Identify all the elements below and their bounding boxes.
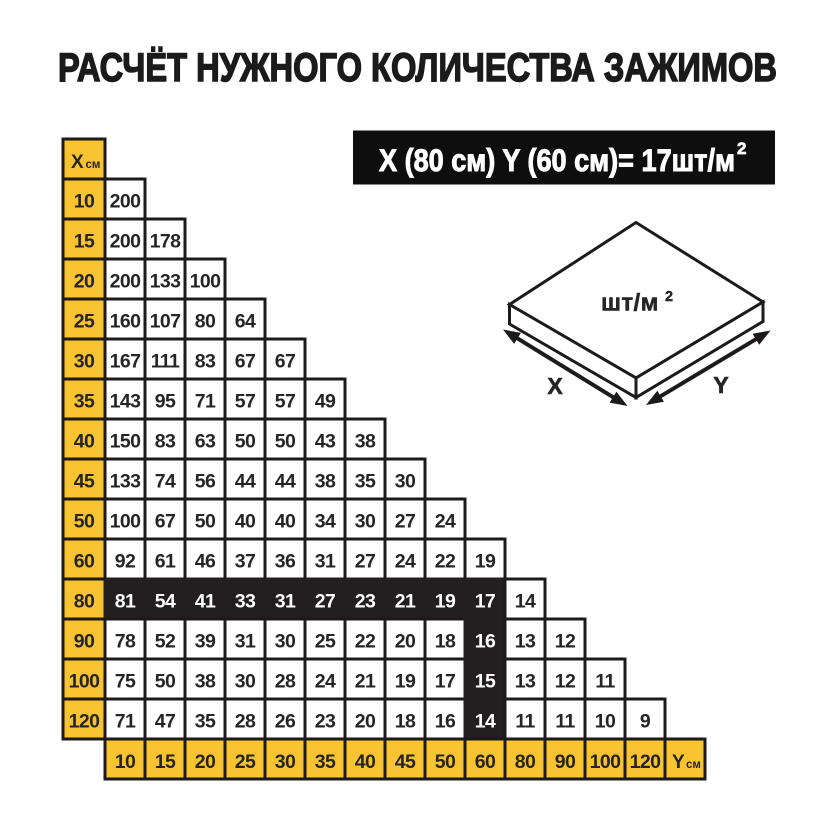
svg-text:40: 40 [235,511,256,533]
svg-text:10: 10 [115,751,136,773]
svg-text:15: 15 [155,751,176,773]
svg-text:30: 30 [235,671,256,693]
svg-text:13: 13 [515,631,536,653]
svg-text:9: 9 [640,711,651,733]
svg-text:11: 11 [595,671,615,693]
svg-text:24: 24 [435,511,456,533]
svg-text:78: 78 [115,631,136,653]
svg-text:30: 30 [275,631,296,653]
svg-text:19: 19 [395,671,416,693]
svg-text:83: 83 [155,431,176,453]
svg-text:40: 40 [275,511,296,533]
svg-text:11: 11 [555,711,575,733]
svg-text:50: 50 [74,511,95,533]
svg-text:100: 100 [590,751,621,773]
svg-text:38: 38 [195,671,216,693]
svg-text:22: 22 [355,631,376,653]
svg-text:37: 37 [235,551,256,573]
svg-text:67: 67 [275,351,296,373]
svg-text:80: 80 [195,311,216,333]
svg-text:33: 33 [235,591,256,613]
svg-text:X (80 см) Y (60 см)= 17шт/м: X (80 см) Y (60 см)= 17шт/м [379,142,735,178]
svg-text:80: 80 [74,591,95,613]
svg-text:РАСЧЁТ НУЖНОГО КОЛИЧЕСТВА ЗАЖИ: РАСЧЁТ НУЖНОГО КОЛИЧЕСТВА ЗАЖИМОВ [58,46,777,90]
svg-text:35: 35 [315,751,336,773]
svg-text:67: 67 [155,511,176,533]
svg-text:40: 40 [355,751,376,773]
svg-text:шт/м: шт/м [601,290,659,317]
svg-text:20: 20 [395,631,416,653]
svg-text:Y: Y [713,372,728,398]
svg-text:31: 31 [275,591,296,613]
svg-text:107: 107 [150,311,181,333]
svg-text:28: 28 [235,711,256,733]
svg-text:90: 90 [555,751,576,773]
svg-text:45: 45 [395,751,416,773]
svg-text:167: 167 [110,351,141,373]
svg-text:2: 2 [737,139,746,158]
svg-text:60: 60 [475,751,496,773]
svg-text:40: 40 [74,431,95,453]
svg-text:44: 44 [235,471,256,493]
svg-text:63: 63 [195,431,216,453]
svg-text:57: 57 [235,391,256,413]
svg-text:50: 50 [195,511,216,533]
svg-text:50: 50 [235,431,256,453]
svg-text:14: 14 [475,711,496,733]
svg-text:75: 75 [115,671,136,693]
svg-text:100: 100 [190,271,221,293]
svg-text:67: 67 [235,351,256,373]
svg-text:24: 24 [395,551,416,573]
svg-text:см: см [686,759,701,771]
svg-text:133: 133 [110,471,141,493]
svg-text:35: 35 [74,391,95,413]
svg-text:25: 25 [74,311,95,333]
svg-text:36: 36 [275,551,296,573]
svg-text:19: 19 [475,551,496,573]
svg-text:14: 14 [515,591,536,613]
svg-text:19: 19 [435,591,456,613]
svg-text:61: 61 [155,551,176,573]
svg-text:80: 80 [515,751,536,773]
svg-text:160: 160 [110,311,141,333]
svg-text:X: X [71,152,84,173]
svg-text:64: 64 [235,311,256,333]
svg-text:21: 21 [395,591,416,613]
svg-text:71: 71 [195,391,216,413]
svg-text:178: 178 [150,231,181,253]
svg-text:81: 81 [115,591,136,613]
svg-text:10: 10 [595,711,616,733]
svg-text:18: 18 [395,711,416,733]
svg-text:46: 46 [195,551,216,573]
svg-text:X: X [547,373,563,399]
svg-text:26: 26 [275,711,296,733]
svg-text:35: 35 [355,471,376,493]
svg-text:30: 30 [275,751,296,773]
svg-text:31: 31 [235,631,256,653]
svg-text:см: см [86,159,101,171]
svg-text:50: 50 [275,431,296,453]
svg-text:27: 27 [355,551,376,573]
svg-text:30: 30 [395,471,416,493]
svg-text:100: 100 [110,511,141,533]
svg-text:44: 44 [275,471,296,493]
svg-text:83: 83 [195,351,216,373]
svg-text:43: 43 [315,431,336,453]
svg-text:41: 41 [195,591,216,613]
svg-text:17: 17 [475,591,496,613]
svg-text:18: 18 [435,631,456,653]
svg-text:38: 38 [355,431,376,453]
svg-text:90: 90 [74,631,95,653]
svg-text:150: 150 [110,431,141,453]
svg-text:52: 52 [155,631,176,653]
svg-text:35: 35 [195,711,216,733]
svg-text:47: 47 [155,711,176,733]
svg-text:20: 20 [195,751,216,773]
svg-text:20: 20 [74,271,95,293]
svg-text:28: 28 [275,671,296,693]
svg-text:20: 20 [355,711,376,733]
svg-text:25: 25 [315,631,336,653]
svg-text:31: 31 [315,551,336,573]
svg-text:74: 74 [155,471,176,493]
svg-text:100: 100 [69,671,100,693]
svg-text:10: 10 [74,191,95,213]
svg-text:Y: Y [672,752,685,773]
svg-text:12: 12 [555,631,576,653]
svg-text:23: 23 [355,591,376,613]
svg-text:16: 16 [475,631,496,653]
svg-text:34: 34 [315,511,336,533]
svg-text:25: 25 [235,751,256,773]
svg-text:21: 21 [355,671,376,693]
svg-text:120: 120 [69,711,100,733]
svg-text:15: 15 [74,231,95,253]
svg-text:16: 16 [435,711,456,733]
svg-text:50: 50 [155,671,176,693]
svg-text:56: 56 [195,471,216,493]
svg-text:133: 133 [150,271,181,293]
svg-text:143: 143 [110,391,141,413]
svg-text:50: 50 [435,751,456,773]
svg-text:111: 111 [151,351,180,373]
svg-text:200: 200 [110,191,141,213]
svg-text:38: 38 [315,471,336,493]
svg-text:54: 54 [155,591,176,613]
svg-text:23: 23 [315,711,336,733]
svg-text:22: 22 [435,551,456,573]
svg-text:71: 71 [115,711,136,733]
svg-text:11: 11 [515,711,535,733]
svg-text:200: 200 [110,231,141,253]
svg-text:92: 92 [115,551,136,573]
svg-text:27: 27 [395,511,416,533]
svg-text:15: 15 [475,671,496,693]
svg-text:60: 60 [74,551,95,573]
svg-text:57: 57 [275,391,296,413]
svg-text:49: 49 [315,391,336,413]
svg-text:13: 13 [515,671,536,693]
svg-text:17: 17 [435,671,456,693]
svg-text:24: 24 [315,671,336,693]
svg-text:27: 27 [315,591,336,613]
svg-text:200: 200 [110,271,141,293]
svg-text:2: 2 [665,289,673,305]
svg-text:120: 120 [630,751,661,773]
svg-text:30: 30 [74,351,95,373]
svg-text:45: 45 [74,471,95,493]
svg-text:12: 12 [555,671,576,693]
svg-text:30: 30 [355,511,376,533]
svg-text:39: 39 [195,631,216,653]
svg-text:95: 95 [155,391,176,413]
